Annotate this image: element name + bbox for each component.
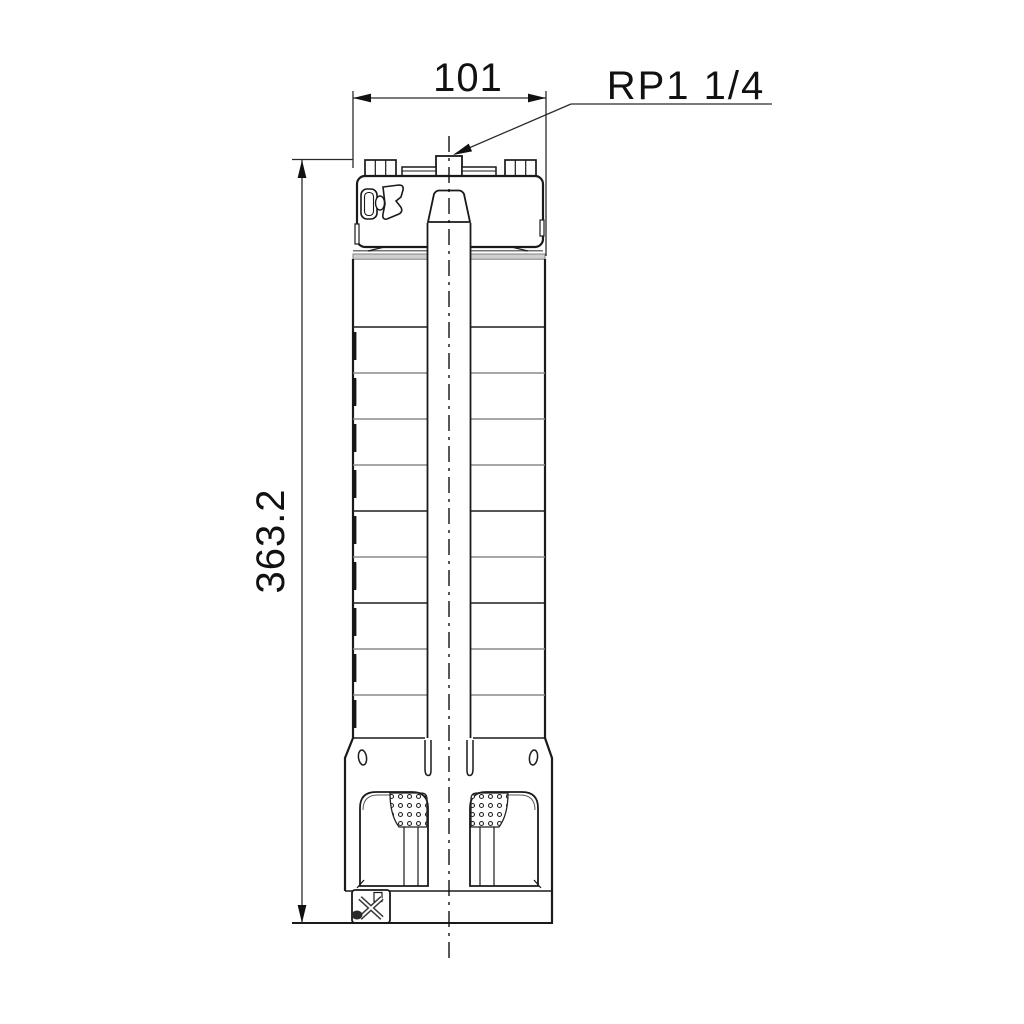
vent-slot-right	[528, 750, 538, 766]
intake-chamber-left	[360, 792, 428, 886]
shell-right-edge	[545, 738, 552, 923]
leader-arrowhead	[453, 144, 472, 155]
suction-section	[292, 738, 553, 923]
pipe-end-slot-left	[425, 740, 431, 776]
dimension-height: 363.2	[249, 160, 353, 924]
arrowhead-left	[353, 94, 371, 103]
head-side-tab-right	[540, 220, 544, 236]
intake-chamber-right	[470, 792, 538, 886]
dim-height-text: 363.2	[249, 488, 293, 593]
shell-left-edge	[345, 738, 353, 891]
connection-label-text: RP1 1/4	[607, 64, 766, 108]
pipe-end-slot-right	[467, 740, 473, 776]
head-bolt-right	[505, 160, 536, 177]
intake-screen-left	[390, 793, 427, 827]
head-side-tab-left	[355, 224, 359, 244]
pump-technical-drawing: 101 363.2 RP1 1/4	[0, 0, 1024, 1024]
badge-seal	[352, 911, 363, 920]
leader-diagonal	[455, 104, 571, 154]
head-bolt-left	[365, 160, 396, 177]
arrowhead-top	[298, 160, 307, 178]
intake-screen-right	[471, 793, 508, 827]
arrowhead-right	[528, 94, 546, 103]
certification-badge	[352, 890, 391, 923]
drawing-canvas: 101 363.2 RP1 1/4	[0, 0, 1024, 1024]
arrowhead-bottom	[298, 905, 307, 923]
dim-width-text: 101	[433, 56, 503, 100]
vent-slot-left	[357, 750, 367, 766]
